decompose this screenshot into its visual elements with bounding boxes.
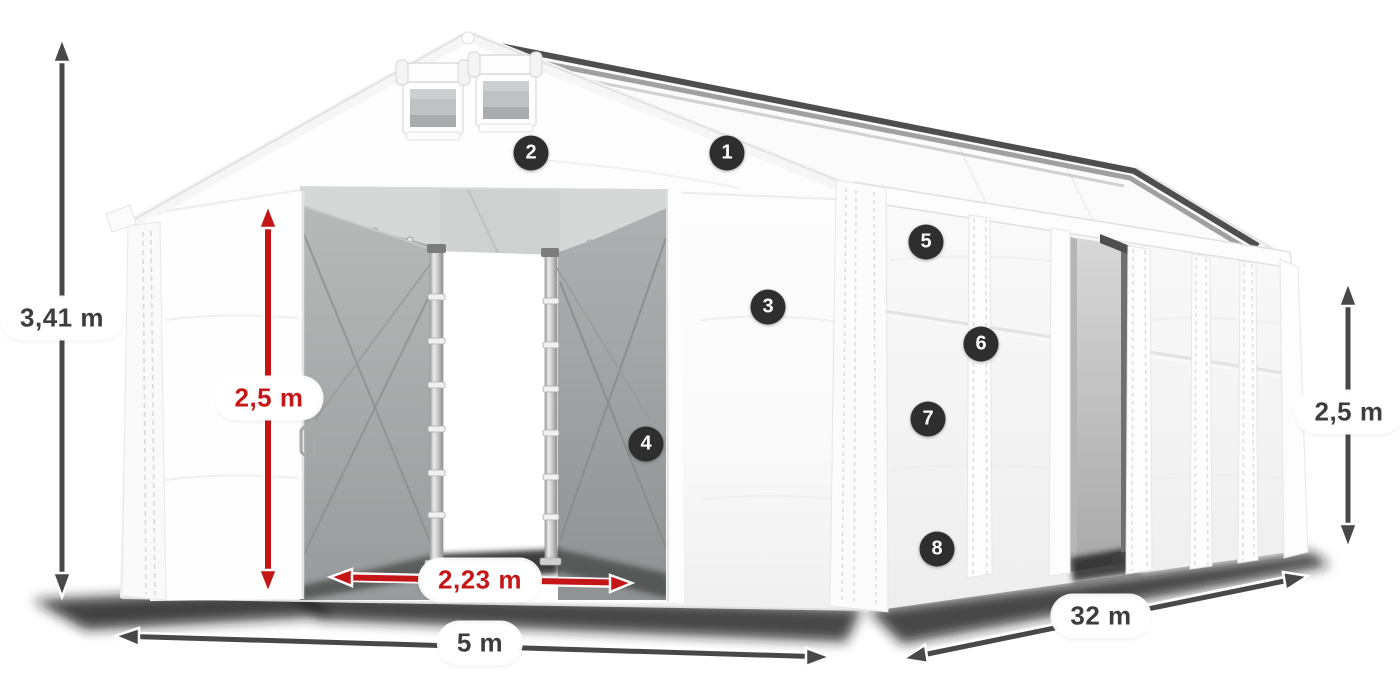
tent-illustration [0,0,1400,700]
feature-marker-6: 6 [964,327,999,362]
feature-marker-4-label: 4 [640,433,651,456]
dimension-label-side-height: 2,5 m [1298,393,1400,432]
feature-marker-8-label: 8 [931,538,942,561]
window-roller-right [474,55,536,74]
feature-marker-6-label: 6 [975,333,986,356]
left-corner-post-cover [122,222,166,600]
feature-marker-5: 5 [909,225,944,260]
feature-marker-5-label: 5 [920,231,931,254]
feature-marker-8: 8 [920,532,955,567]
dimension-label-entrance-height: 2,5 m [218,379,321,418]
feature-marker-7-label: 7 [922,408,933,431]
dimension-label-entrance-width: 2,23 m [421,561,539,600]
feature-marker-2: 2 [514,136,549,171]
tent-dimension-diagram: 1 2 3 4 5 6 7 8 3,41 m 2,5 m 2,23 m 5 m … [0,0,1400,700]
feature-marker-4: 4 [629,427,664,462]
entrance-interior [298,186,673,604]
feature-marker-3-label: 3 [762,296,773,319]
feature-marker-3: 3 [751,290,786,325]
feature-marker-1: 1 [710,136,745,171]
gable-window-left [396,60,470,140]
dimension-label-side-length: 32 m [1053,597,1148,636]
dimension-label-total-height: 3,41 m [3,299,121,338]
window-roller-left [402,63,464,82]
feature-marker-1-label: 1 [721,142,732,165]
dimension-label-front-width: 5 m [440,624,520,663]
feature-marker-7: 7 [911,402,946,437]
gable-window-right [468,52,542,132]
feature-marker-2-label: 2 [525,142,536,165]
front-corner-post-cover [830,180,888,612]
